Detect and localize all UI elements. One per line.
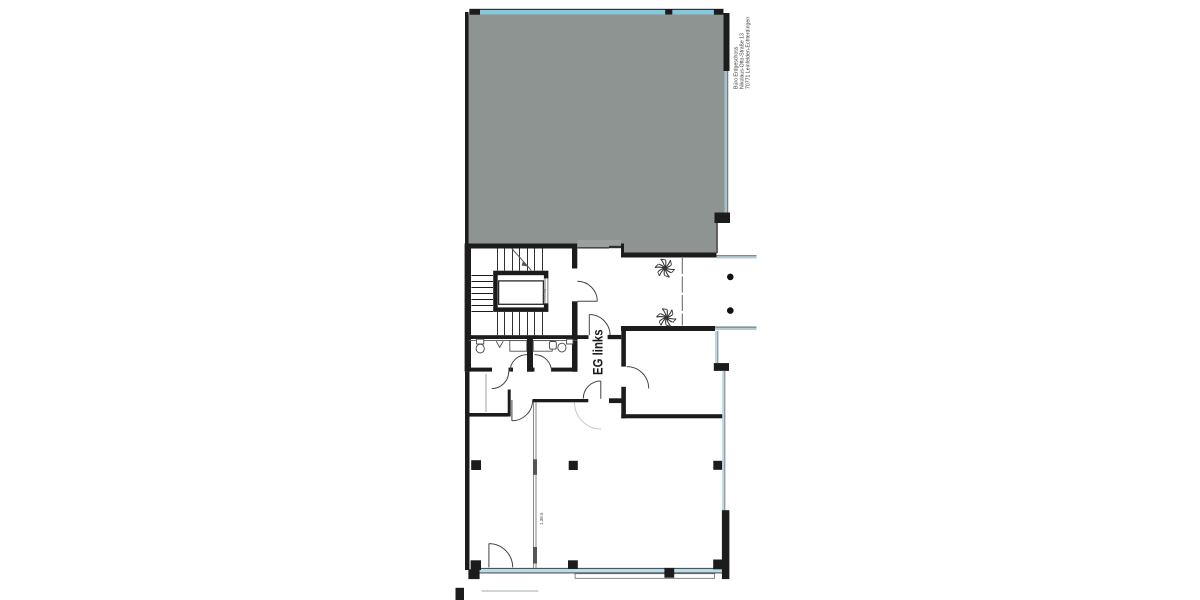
svg-text:630 kg: 630 kg (541, 289, 546, 301)
svg-text:1.38.5: 1.38.5 (539, 512, 544, 525)
svg-text:EG links: EG links (590, 329, 605, 375)
svg-text:70771 Leinfelden-Echterdingen: 70771 Leinfelden-Echterdingen (746, 17, 752, 89)
